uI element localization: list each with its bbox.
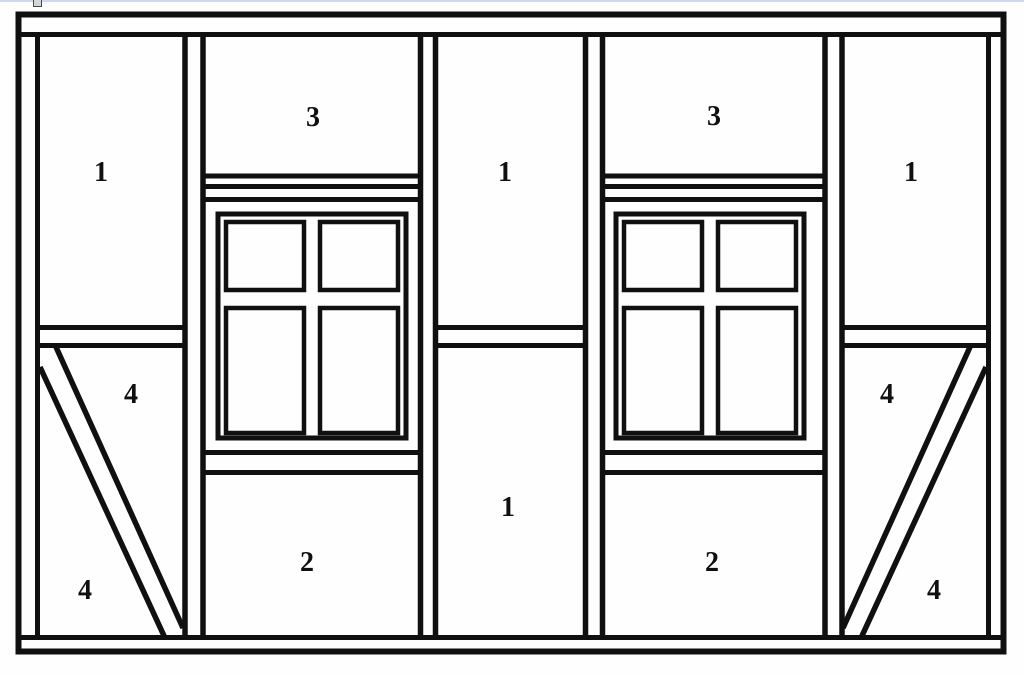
timber-frame-wall-diagram: 1 3 1 3 1 4 4 1 2 2 4 4	[0, 0, 1024, 675]
panel-label: 1	[501, 492, 515, 523]
right-window-pane-upper-right	[718, 222, 796, 290]
panel-label: 1	[498, 157, 512, 188]
left-brace-lower-line	[40, 367, 165, 638]
left-bay	[40, 328, 183, 639]
studs	[185, 32, 842, 640]
left-window-frame	[218, 214, 406, 438]
right-window-frame	[616, 214, 804, 438]
left-window-pane-upper-right	[320, 222, 398, 290]
panel-label: 1	[904, 157, 918, 188]
right-window-pane-lower-left	[624, 308, 702, 433]
wall-outer-frame	[19, 15, 1004, 652]
outer-frame-rect	[19, 15, 1004, 652]
panel-label: 3	[707, 101, 721, 132]
window-bay-right	[603, 176, 824, 473]
right-window-pane-upper-left	[624, 222, 702, 290]
left-window-pane-upper-left	[226, 222, 304, 290]
panel-label: 4	[927, 575, 941, 606]
panel-label: 2	[705, 547, 719, 578]
center-bay	[438, 328, 583, 346]
screenshot-root: 1 3 1 3 1 4 4 1 2 2 4 4	[0, 0, 1024, 675]
window-bay-left	[206, 176, 419, 473]
panel-label: 1	[94, 157, 108, 188]
left-window-pane-lower-left	[226, 308, 304, 433]
panel-label: 3	[306, 102, 320, 133]
panel-label: 4	[78, 575, 92, 606]
right-window-pane-lower-right	[718, 308, 796, 433]
panel-label: 4	[124, 379, 138, 410]
left-brace-upper-line	[56, 347, 183, 628]
left-window-pane-lower-right	[320, 308, 398, 433]
right-brace-upper-line	[843, 347, 970, 628]
panel-label: 4	[880, 379, 894, 410]
panel-label: 2	[300, 547, 314, 578]
right-bay	[843, 328, 986, 639]
